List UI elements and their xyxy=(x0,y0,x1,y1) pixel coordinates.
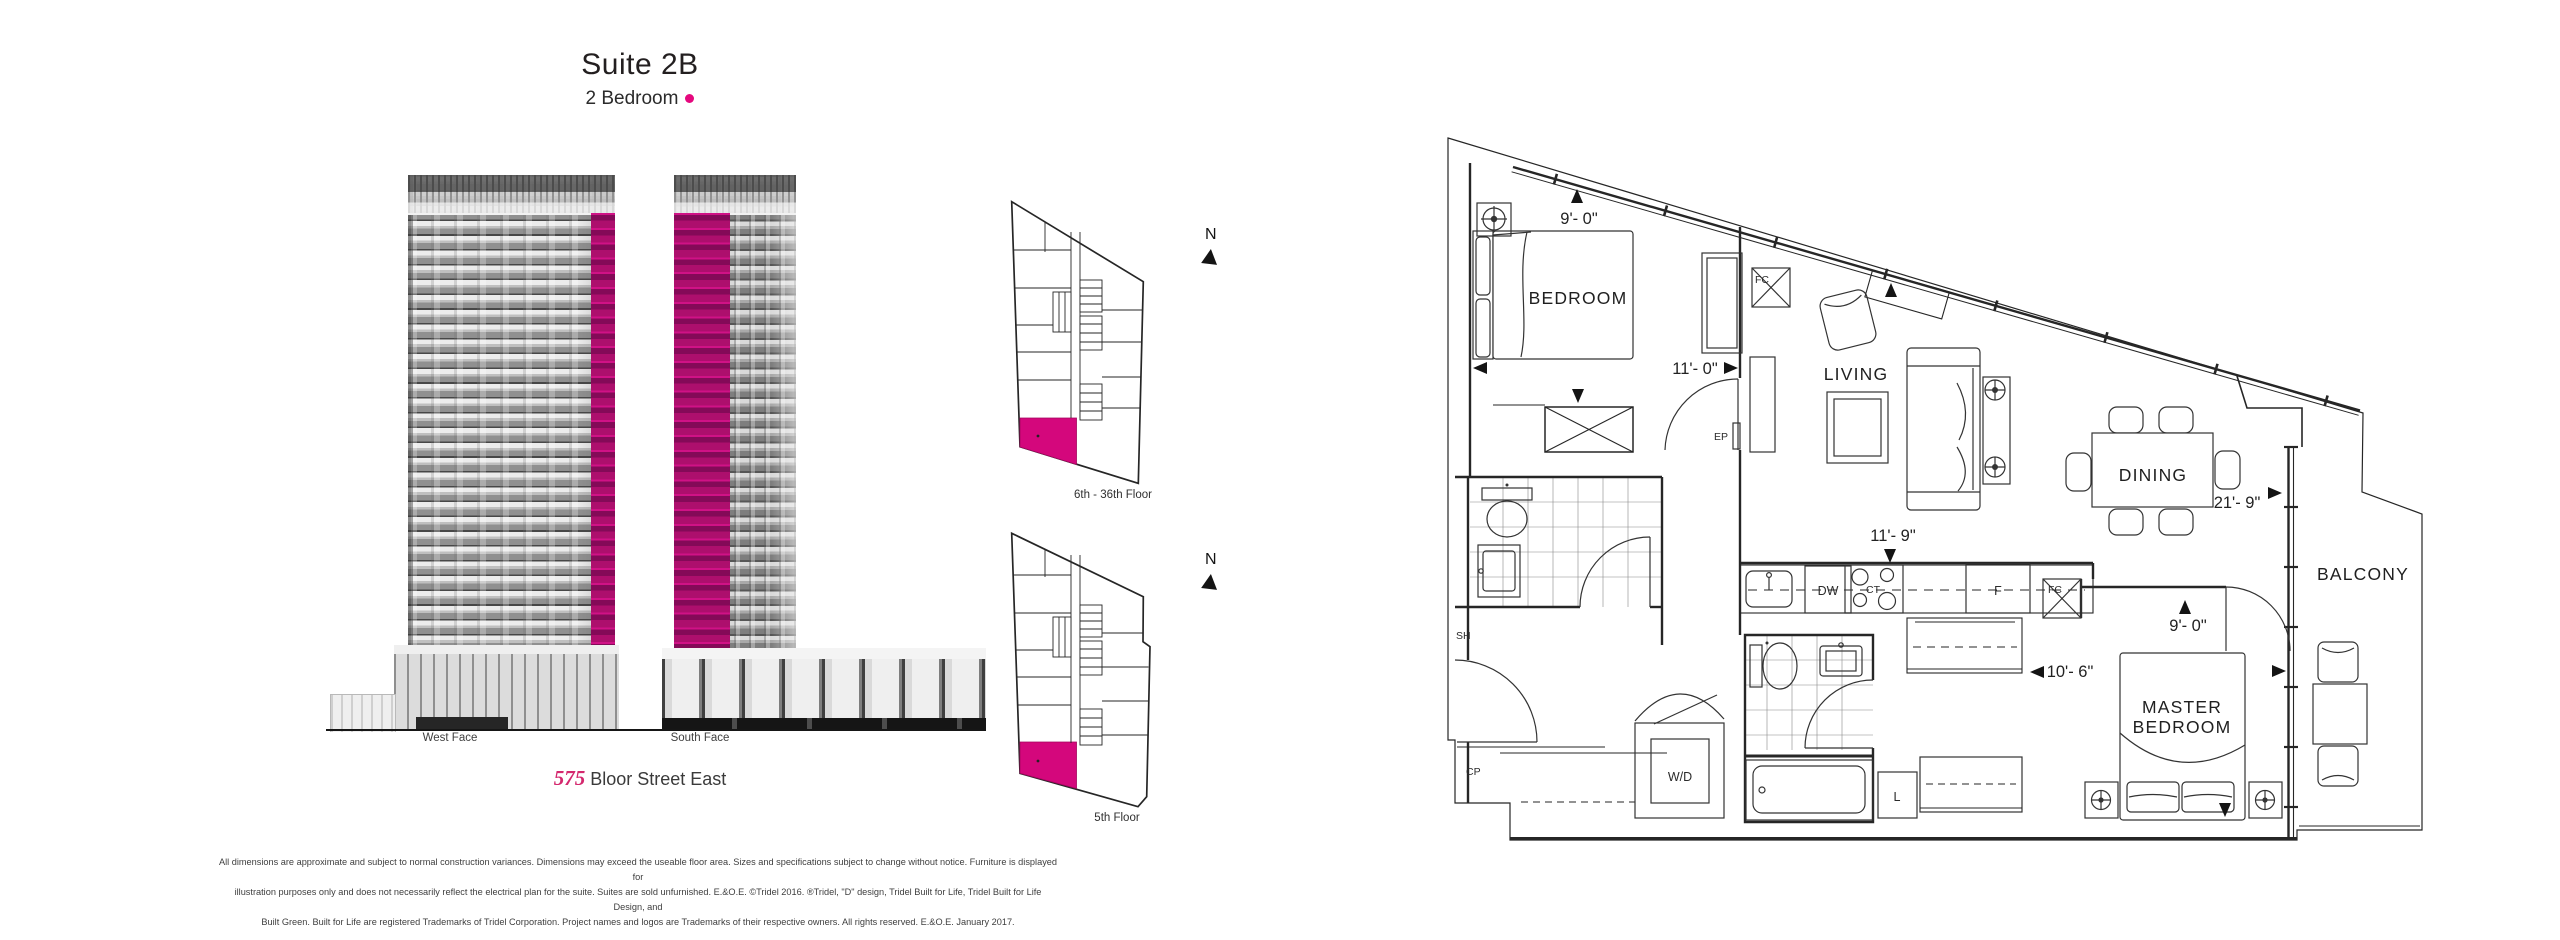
annex-building xyxy=(330,694,396,732)
coffee-table xyxy=(1827,392,1888,463)
master-closet xyxy=(1920,757,2022,812)
disclaimer-line-2: illustration purposes only and does not … xyxy=(218,885,1058,915)
address-number: 575 xyxy=(554,766,586,790)
suite-subtitle: 2 Bedroom xyxy=(530,88,750,110)
north-label: N xyxy=(1205,551,1217,569)
tower-south-elevation xyxy=(674,175,796,648)
nightstand-lamp xyxy=(2085,782,2118,818)
bedroom-closet xyxy=(1702,253,1742,353)
dining-chair xyxy=(2159,407,2193,433)
west-face-label: West Face xyxy=(415,732,485,744)
label-cp: CP xyxy=(1466,766,1481,778)
tower-crown xyxy=(674,175,796,215)
dim-bedroom-depth: 11'- 0" xyxy=(1672,360,1718,378)
room-label-balcony: BALCONY xyxy=(2317,564,2409,584)
disclaimer-line-1: All dimensions are approximate and subje… xyxy=(218,855,1058,885)
ensuite-bath xyxy=(1746,642,1873,821)
podium-south xyxy=(662,648,986,731)
dining-chair xyxy=(2215,451,2240,489)
keyplan-lower: 5th Floor xyxy=(1000,525,1160,825)
room-label-bedroom: BEDROOM xyxy=(1529,288,1628,308)
dim-span: 21'- 9" xyxy=(2214,494,2261,512)
dim-living-width: 11'- 9" xyxy=(1870,527,1916,545)
room-label-dining: DINING xyxy=(2119,465,2187,485)
main-bath xyxy=(1478,484,1532,598)
dining-chair xyxy=(2109,509,2143,535)
dim-master-span: 10'- 6" xyxy=(2047,663,2094,681)
balcony-table xyxy=(2313,684,2367,744)
console-table xyxy=(1983,377,2010,484)
bathtub xyxy=(1746,760,1873,820)
balcony-set xyxy=(2313,642,2367,786)
tv-console xyxy=(1750,357,1775,452)
label-sh: SH xyxy=(1456,630,1471,642)
balcony-chair xyxy=(2318,642,2358,682)
vanity-sink xyxy=(1478,545,1520,597)
page-title: Suite 2B xyxy=(530,48,750,82)
nightstand-lamp xyxy=(2249,782,2282,818)
dining-chair xyxy=(2066,453,2091,491)
keyplan-upper: 6th - 36th Floor xyxy=(1000,192,1160,502)
label-wd: W/D xyxy=(1668,770,1692,784)
living-sofa xyxy=(1907,348,1980,510)
dining-chair xyxy=(2109,407,2143,433)
disclaimer-line-3: Built Green. Built for Life are register… xyxy=(218,915,1058,930)
suite-type-dot xyxy=(685,94,694,103)
kitchen-island xyxy=(1907,618,2022,673)
address: 575Bloor Street East xyxy=(470,766,810,791)
toilet xyxy=(1482,488,1532,500)
north-arrow-icon xyxy=(1201,248,1219,265)
label-fc: FC xyxy=(2048,584,2062,596)
kitchen xyxy=(1740,564,2093,673)
floorplan: 9'- 0" 11'- 0" 11'- 9" 21'- 9" 9'- 0" 10… xyxy=(1437,85,2467,860)
balcony-chair xyxy=(2318,746,2358,786)
tower-crown xyxy=(408,175,615,215)
toilet xyxy=(1750,645,1762,687)
dim-bedroom-window: 9'- 0" xyxy=(1560,210,1598,228)
north-arrow-icon xyxy=(1201,573,1219,590)
address-street: Bloor Street East xyxy=(590,769,726,789)
room-label-master-2: BEDROOM xyxy=(2133,717,2232,737)
suite-stack-highlight xyxy=(591,213,615,645)
suite-highlight xyxy=(1020,418,1077,465)
ground-line xyxy=(326,729,984,731)
label-fridge: F xyxy=(1994,584,2002,598)
label-ep: EP xyxy=(1714,431,1728,443)
dim-master-window: 9'- 0" xyxy=(2169,617,2207,635)
keyplan-upper-label: 6th - 36th Floor xyxy=(1074,489,1152,501)
label-fc: FC xyxy=(1755,274,1769,286)
south-face-label: South Face xyxy=(665,732,735,744)
label-dw: DW xyxy=(1818,584,1839,598)
room-label-master-1: MASTER xyxy=(2142,697,2222,717)
legal-disclaimer: All dimensions are approximate and subje… xyxy=(218,855,1058,930)
room-label-living: LIVING xyxy=(1824,364,1889,384)
suite-stack-highlight xyxy=(674,213,730,648)
label-linen: L xyxy=(1894,790,1901,804)
electrical-panel xyxy=(1733,423,1740,449)
tower-west-elevation xyxy=(408,175,615,645)
suite-type-label: 2 Bedroom xyxy=(586,88,679,109)
north-label: N xyxy=(1205,226,1217,244)
suite-title-block: Suite 2B 2 Bedroom xyxy=(530,48,750,110)
dining-chair xyxy=(2159,509,2193,535)
podium-west xyxy=(394,645,619,731)
label-ct: CT xyxy=(1866,584,1881,596)
keyplan-lower-label: 5th Floor xyxy=(1094,812,1140,824)
